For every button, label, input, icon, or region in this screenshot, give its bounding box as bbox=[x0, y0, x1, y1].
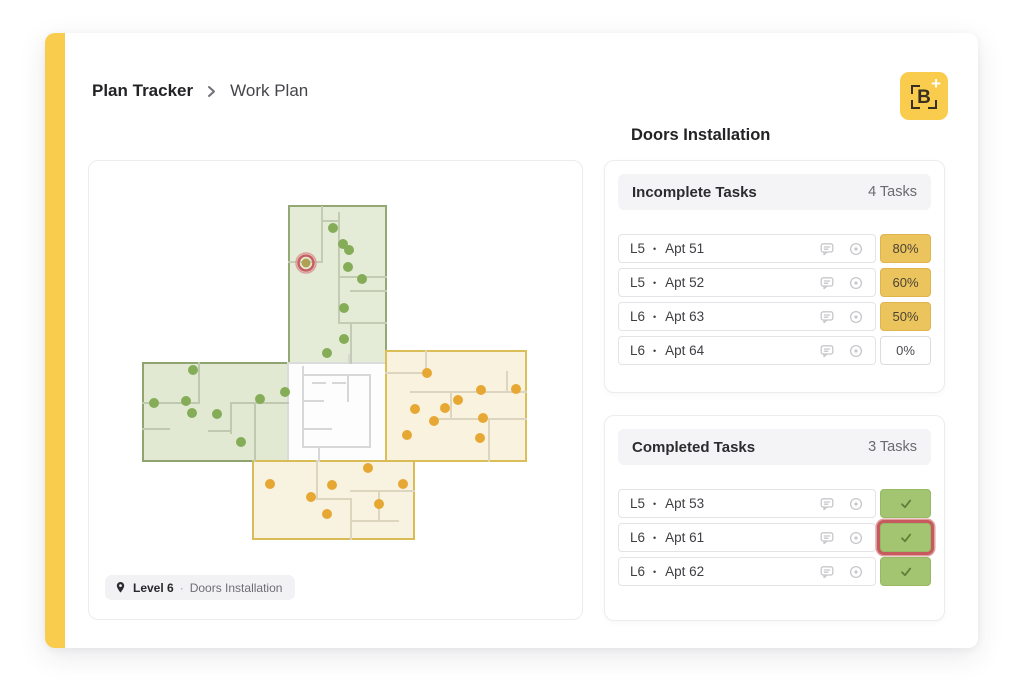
task-level: L6 bbox=[630, 530, 649, 545]
task-row-main[interactable]: L6•Apt 64 bbox=[618, 336, 876, 365]
task-apartment: Apt 51 bbox=[665, 241, 704, 256]
breadcrumb-section[interactable]: Plan Tracker bbox=[92, 81, 193, 101]
completed-check-badge[interactable] bbox=[880, 557, 931, 586]
task-marker-green[interactable] bbox=[328, 223, 338, 233]
floorplan-map[interactable] bbox=[89, 161, 582, 619]
task-marker-green[interactable] bbox=[181, 396, 191, 406]
comment-icon[interactable] bbox=[819, 530, 835, 546]
locate-target-icon[interactable] bbox=[848, 496, 864, 512]
incomplete-tasks-card: Incomplete Tasks 4 Tasks L5•Apt 5180%L5•… bbox=[604, 160, 945, 393]
task-marker-orange[interactable] bbox=[422, 368, 432, 378]
task-level: L5 bbox=[630, 241, 649, 256]
task-marker-orange[interactable] bbox=[478, 413, 488, 423]
task-row: L5•Apt 5260% bbox=[618, 268, 931, 297]
task-marker-orange[interactable] bbox=[440, 403, 450, 413]
level-label: Level 6 bbox=[133, 581, 174, 595]
task-level: L5 bbox=[630, 496, 649, 511]
task-marker-green[interactable] bbox=[187, 408, 197, 418]
progress-badge[interactable]: 0% bbox=[880, 336, 931, 365]
completed-tasks-title: Completed Tasks bbox=[632, 439, 755, 456]
badge-separator: · bbox=[180, 581, 184, 595]
task-marker-green[interactable] bbox=[149, 398, 159, 408]
bullet-separator: • bbox=[653, 278, 656, 288]
task-marker-orange[interactable] bbox=[453, 395, 463, 405]
task-marker-orange[interactable] bbox=[511, 384, 521, 394]
task-marker-orange[interactable] bbox=[429, 416, 439, 426]
task-marker-orange[interactable] bbox=[322, 509, 332, 519]
task-row-main[interactable]: L5•Apt 51 bbox=[618, 234, 876, 263]
task-apartment: Apt 64 bbox=[665, 343, 704, 358]
breadcrumb-page[interactable]: Work Plan bbox=[230, 81, 308, 101]
bullet-separator: • bbox=[653, 499, 656, 509]
task-row: L6•Apt 62 bbox=[618, 557, 931, 586]
task-apartment: Apt 61 bbox=[665, 530, 704, 545]
task-row: L5•Apt 53 bbox=[618, 489, 931, 518]
bullet-separator: • bbox=[653, 312, 656, 322]
incomplete-tasks-count: 4 Tasks bbox=[868, 184, 917, 200]
task-marker-green[interactable] bbox=[212, 409, 222, 419]
task-marker-orange[interactable] bbox=[410, 404, 420, 414]
locate-target-icon[interactable] bbox=[848, 530, 864, 546]
task-row: L6•Apt 61 bbox=[618, 523, 931, 552]
task-apartment: Apt 63 bbox=[665, 309, 704, 324]
app-window: Plan Tracker Work Plan B + bbox=[45, 33, 978, 648]
task-row: L6•Apt 640% bbox=[618, 336, 931, 365]
locate-target-icon[interactable] bbox=[848, 564, 864, 580]
task-marker-selected[interactable] bbox=[302, 259, 311, 268]
comment-icon[interactable] bbox=[819, 309, 835, 325]
task-marker-green[interactable] bbox=[343, 262, 353, 272]
task-row-main[interactable]: L5•Apt 52 bbox=[618, 268, 876, 297]
task-marker-green[interactable] bbox=[280, 387, 290, 397]
task-marker-green[interactable] bbox=[339, 334, 349, 344]
floorplan-card: Level 6 · Doors Installation bbox=[88, 160, 583, 620]
left-accent-bar bbox=[45, 33, 65, 648]
task-marker-orange[interactable] bbox=[402, 430, 412, 440]
task-row-main[interactable]: L6•Apt 62 bbox=[618, 557, 876, 586]
completed-check-badge-selected[interactable] bbox=[880, 523, 931, 552]
task-marker-orange[interactable] bbox=[475, 433, 485, 443]
task-row-main[interactable]: L6•Apt 61 bbox=[618, 523, 876, 552]
completed-tasks-header: Completed Tasks 3 Tasks bbox=[618, 429, 931, 465]
bullet-separator: • bbox=[653, 533, 656, 543]
bullet-separator: • bbox=[653, 567, 656, 577]
activity-label: Doors Installation bbox=[190, 581, 283, 595]
task-marker-orange[interactable] bbox=[398, 479, 408, 489]
task-marker-orange[interactable] bbox=[476, 385, 486, 395]
locate-target-icon[interactable] bbox=[848, 241, 864, 257]
task-marker-orange[interactable] bbox=[306, 492, 316, 502]
task-level: L5 bbox=[630, 275, 649, 290]
task-marker-orange[interactable] bbox=[265, 479, 275, 489]
task-row-main[interactable]: L5•Apt 53 bbox=[618, 489, 876, 518]
plus-icon: + bbox=[931, 74, 941, 94]
breadcrumb: Plan Tracker Work Plan bbox=[92, 81, 308, 101]
progress-badge[interactable]: 80% bbox=[880, 234, 931, 263]
task-marker-orange[interactable] bbox=[374, 499, 384, 509]
task-marker-green[interactable] bbox=[344, 245, 354, 255]
task-level: L6 bbox=[630, 564, 649, 579]
locate-target-icon[interactable] bbox=[848, 309, 864, 325]
task-row: L6•Apt 6350% bbox=[618, 302, 931, 331]
task-apartment: Apt 62 bbox=[665, 564, 704, 579]
bullet-separator: • bbox=[653, 244, 656, 254]
comment-icon[interactable] bbox=[819, 564, 835, 580]
incomplete-tasks-header: Incomplete Tasks 4 Tasks bbox=[618, 174, 931, 210]
comment-icon[interactable] bbox=[819, 496, 835, 512]
panel-title: Doors Installation bbox=[631, 126, 770, 145]
task-level: L6 bbox=[630, 309, 649, 324]
task-marker-green[interactable] bbox=[188, 365, 198, 375]
incomplete-tasks-title: Incomplete Tasks bbox=[632, 184, 757, 201]
task-level: L6 bbox=[630, 343, 649, 358]
chevron-right-icon bbox=[206, 85, 217, 98]
task-marker-green[interactable] bbox=[255, 394, 265, 404]
task-marker-green[interactable] bbox=[322, 348, 332, 358]
brand-logo[interactable]: B + bbox=[900, 72, 948, 120]
comment-icon[interactable] bbox=[819, 343, 835, 359]
completed-check-badge[interactable] bbox=[880, 489, 931, 518]
floorplan-region-wing-right[interactable] bbox=[386, 351, 526, 461]
locate-target-icon[interactable] bbox=[848, 343, 864, 359]
task-marker-green[interactable] bbox=[357, 274, 367, 284]
task-marker-green[interactable] bbox=[236, 437, 246, 447]
task-apartment: Apt 52 bbox=[665, 275, 704, 290]
task-apartment: Apt 53 bbox=[665, 496, 704, 511]
completed-tasks-card: Completed Tasks 3 Tasks L5•Apt 53L6•Apt … bbox=[604, 415, 945, 621]
locate-target-icon[interactable] bbox=[848, 275, 864, 291]
progress-badge[interactable]: 50% bbox=[880, 302, 931, 331]
level-status-badge: Level 6 · Doors Installation bbox=[105, 575, 295, 600]
task-marker-green[interactable] bbox=[339, 303, 349, 313]
completed-task-list: L5•Apt 53L6•Apt 61L6•Apt 62 bbox=[618, 489, 931, 586]
completed-tasks-count: 3 Tasks bbox=[868, 439, 917, 455]
bullet-separator: • bbox=[653, 346, 656, 356]
task-row: L5•Apt 5180% bbox=[618, 234, 931, 263]
task-marker-orange[interactable] bbox=[327, 480, 337, 490]
progress-badge[interactable]: 60% bbox=[880, 268, 931, 297]
comment-icon[interactable] bbox=[819, 241, 835, 257]
incomplete-task-list: L5•Apt 5180%L5•Apt 5260%L6•Apt 6350%L6•A… bbox=[618, 234, 931, 365]
comment-icon[interactable] bbox=[819, 275, 835, 291]
map-pin-icon bbox=[114, 580, 127, 595]
task-row-main[interactable]: L6•Apt 63 bbox=[618, 302, 876, 331]
task-marker-orange[interactable] bbox=[363, 463, 373, 473]
